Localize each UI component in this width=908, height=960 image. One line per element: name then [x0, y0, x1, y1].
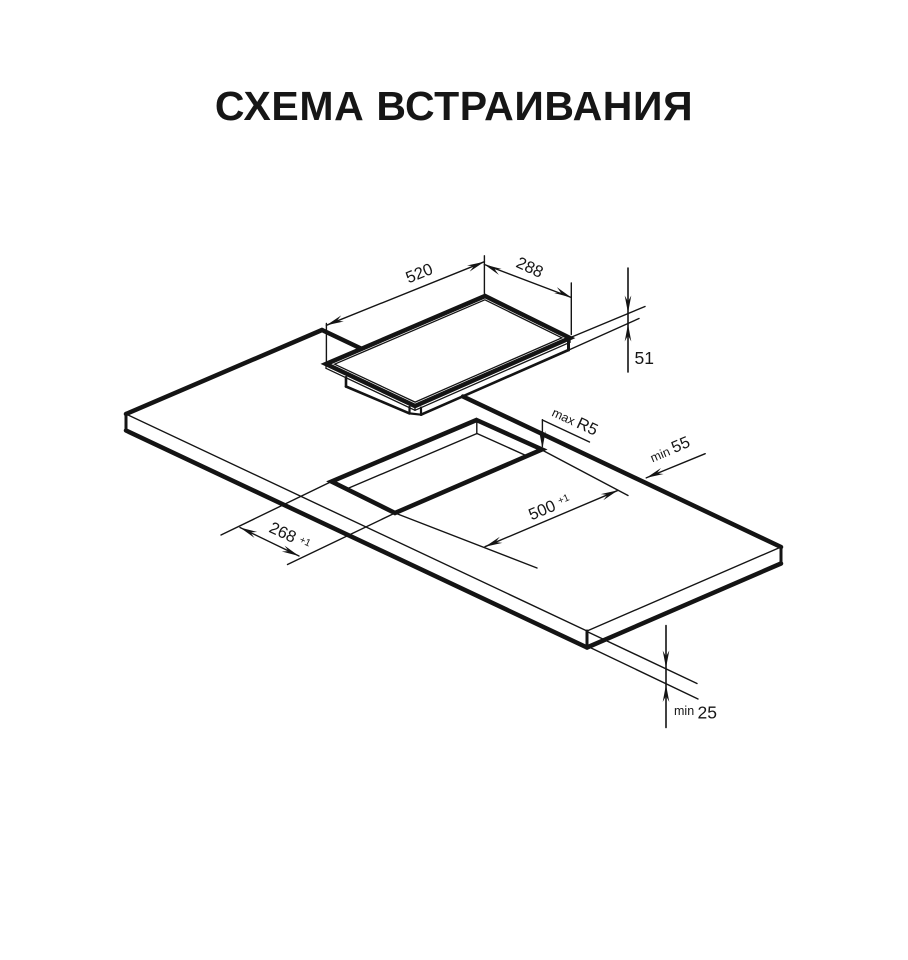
- svg-text:268 +1: 268 +1: [266, 519, 313, 554]
- svg-text:max R5: max R5: [549, 403, 600, 440]
- svg-text:min: min: [674, 704, 694, 718]
- svg-text:25: 25: [698, 703, 717, 723]
- svg-text:51: 51: [635, 348, 654, 368]
